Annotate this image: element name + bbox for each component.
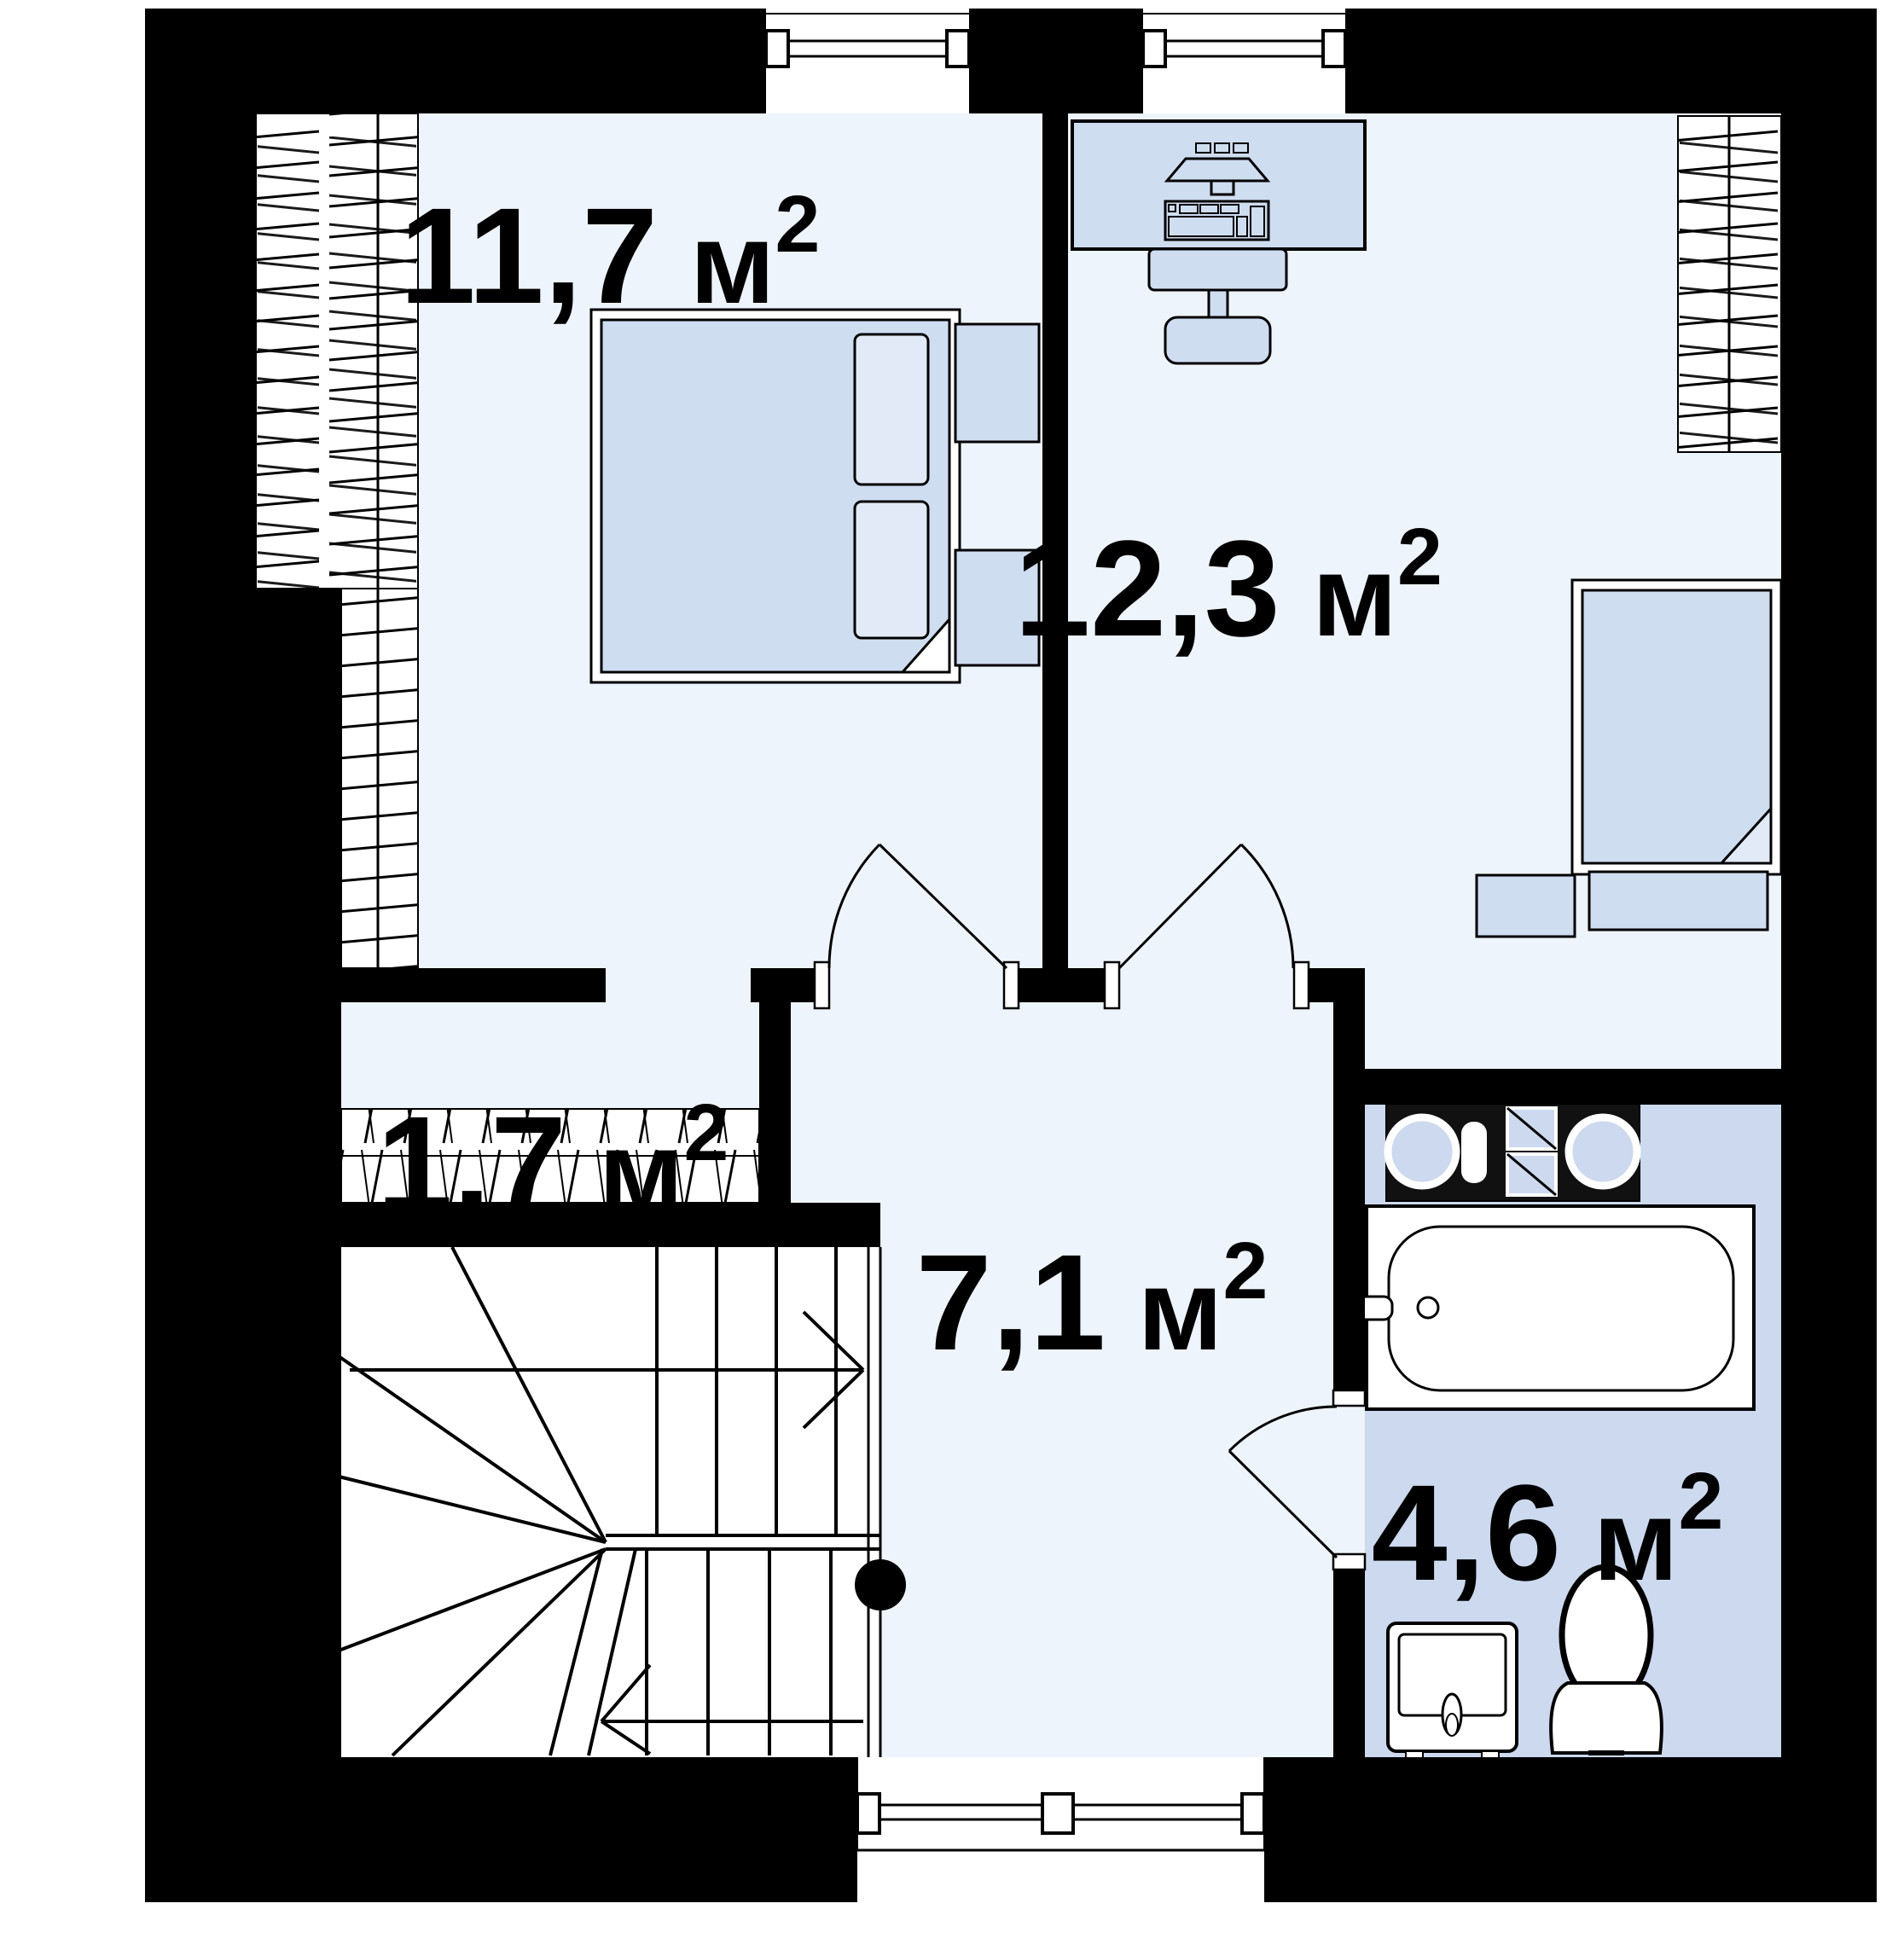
door-opening-bedroom2 [1119, 968, 1294, 1002]
wall-left [145, 9, 256, 589]
winder-staircase-icon [339, 1247, 906, 1757]
nightstand-icon [955, 324, 1039, 442]
wall-left [145, 589, 341, 1902]
wall-bathroom-left [1333, 1570, 1365, 1757]
room-label-closet: 1,7 м2 [377, 1088, 729, 1240]
floor-plan-svg: 11,7 м2 12,3 м2 1,7 м2 7,1 м2 4,6 м2 [0, 0, 1904, 1944]
single-bed-icon [1572, 580, 1781, 874]
nightstand-icon [1477, 875, 1575, 937]
wall-closet-right [759, 1002, 791, 1203]
nightstand-icon [1589, 872, 1768, 930]
bathtub-icon [1358, 1206, 1754, 1409]
monitor-icon [1167, 159, 1268, 181]
wardrobe-rail-icon [1678, 116, 1781, 452]
door-opening-bathroom [1333, 1406, 1365, 1554]
pillow-icon [855, 502, 928, 638]
room-label-bathroom: 4,6 м2 [1372, 1456, 1724, 1609]
window-icon [766, 9, 969, 113]
window-icon [1143, 9, 1345, 113]
wall-top [969, 9, 1143, 113]
desk-with-computer-icon [1072, 121, 1365, 249]
wall-right [1781, 9, 1877, 1902]
closet-opening [606, 968, 751, 1002]
pillow-icon [855, 334, 928, 485]
newel-post-icon [855, 1559, 906, 1610]
room-label-bedroom1: 11,7 м2 [400, 179, 821, 332]
window-icon [857, 1757, 1264, 1850]
wall-hall-top [751, 968, 815, 1002]
floor-plan-page: 11,7 м2 12,3 м2 1,7 м2 7,1 м2 4,6 м2 [0, 0, 1904, 1944]
door-opening-bedroom1 [829, 968, 1004, 1002]
wall-bathroom-left [1333, 1002, 1365, 1390]
sink-icon [1388, 1623, 1517, 1760]
wall-bathroom-top [1365, 1069, 1781, 1105]
wall-hall-top [1309, 968, 1365, 1002]
wall-hall-pier [1015, 968, 1105, 1002]
toilet-tank [1551, 1683, 1662, 1753]
washer-dryer-icon [1386, 1103, 1640, 1201]
room-label-bedroom2: 12,3 м2 [1014, 512, 1443, 664]
wall-bottom [1264, 1757, 1877, 1902]
wall-bottom [145, 1757, 857, 1902]
wall-closet-top [341, 968, 606, 1002]
double-bed-icon [591, 310, 960, 682]
room-label-hall: 7,1 м2 [916, 1226, 1268, 1378]
